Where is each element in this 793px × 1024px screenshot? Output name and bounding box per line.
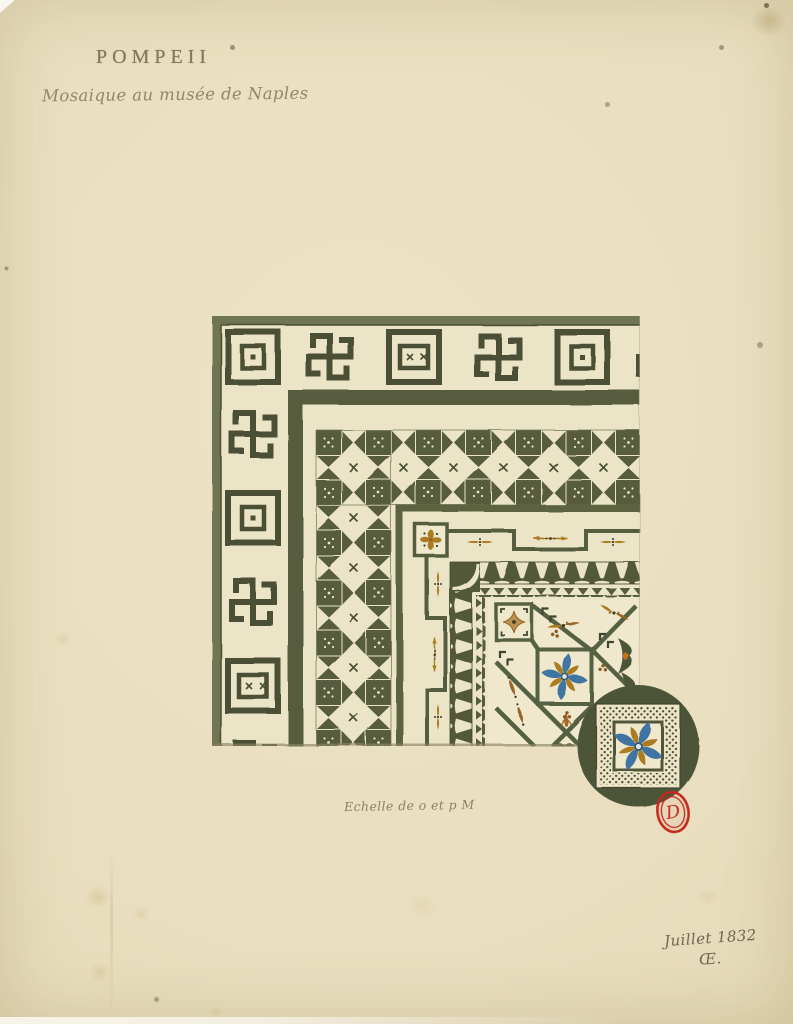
paper-stain [605,102,610,107]
drawing-title: POMPEII [96,46,211,69]
paper-stain [3,265,10,272]
signature-date: Juillet 1832 [663,926,757,950]
paper-stain [128,903,154,925]
paper-stain [50,628,76,650]
mosaic-drawing: D [212,316,712,836]
diamond-panel [496,604,532,640]
scanned-drawing-page: POMPEII Mosaique au musée de Naples Eche… [0,0,793,1024]
paper-corner-sliver [0,0,15,13]
paper-stain [757,342,763,348]
signature-monogram: Œ. [698,949,722,969]
paper-edge-sliver [0,1017,793,1024]
paper-stain [152,995,161,1004]
rosette-panel [538,650,592,704]
detail-inset-circle [577,685,699,807]
drawing-subtitle: Mosaique au musée de Naples [42,84,309,106]
paper-crease [110,843,113,1024]
paper-stain [764,3,769,8]
paper-stain [230,45,235,50]
paper-stain [693,884,723,910]
paper-stain [400,888,444,924]
paper-stain [719,45,724,50]
paper-stain [745,0,793,42]
